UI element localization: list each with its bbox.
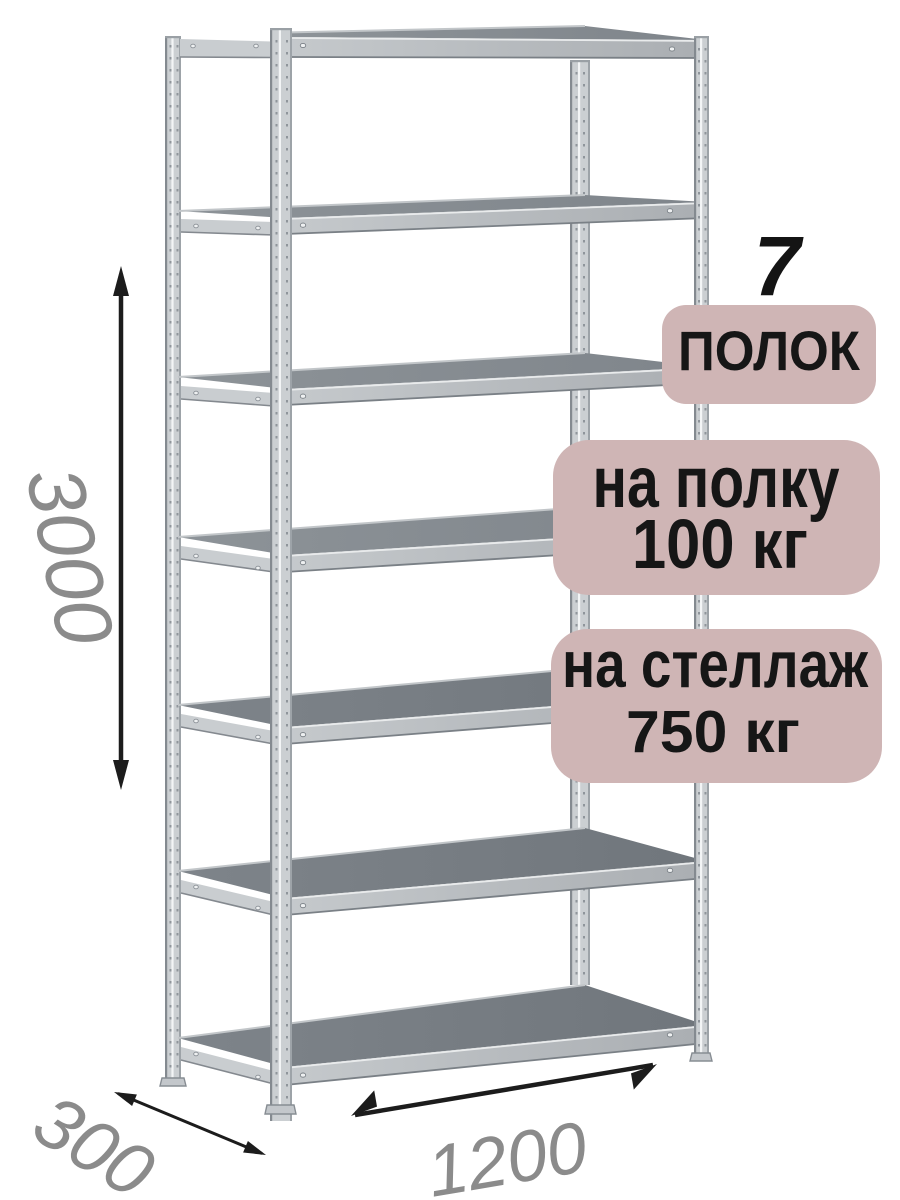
svg-text:100 кг: 100 кг [632, 505, 808, 583]
svg-text:7: 7 [754, 219, 804, 313]
svg-text:на стеллаж: на стеллаж [562, 627, 869, 701]
svg-text:ПОЛОК: ПОЛОК [678, 319, 861, 382]
svg-text:750 кг: 750 кг [626, 699, 800, 765]
